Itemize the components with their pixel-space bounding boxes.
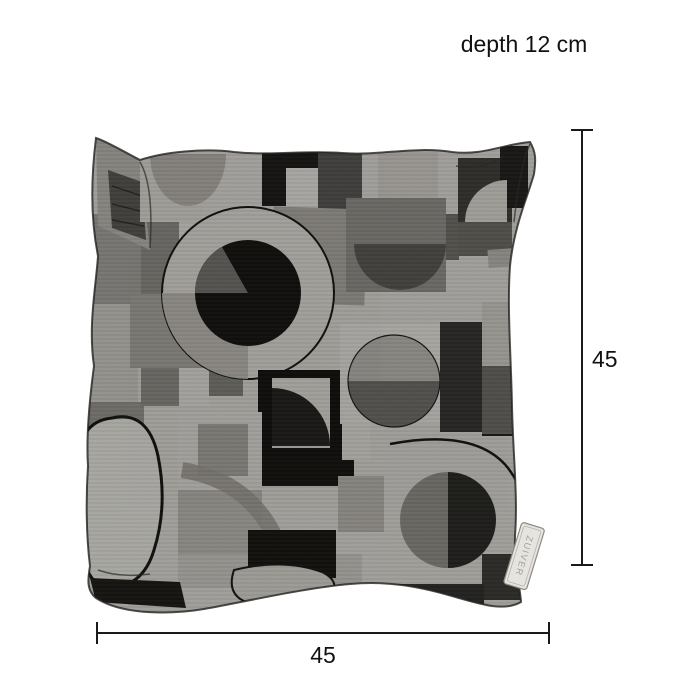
width-dimension-cap-right — [548, 622, 550, 644]
width-dimension-line — [96, 632, 550, 634]
depth-label: depth 12 cm — [424, 30, 624, 58]
cushion-figure: ZUIVER — [84, 126, 554, 620]
width-value-label: 45 — [293, 642, 353, 668]
height-dimension-cap-bottom — [571, 564, 593, 566]
cushion-pattern — [84, 126, 554, 620]
height-value-label: 45 — [592, 346, 618, 372]
grain-texture-overlay — [84, 126, 554, 620]
height-dimension-line — [581, 129, 583, 566]
product-dimension-diagram: depth 12 cm — [0, 0, 700, 700]
